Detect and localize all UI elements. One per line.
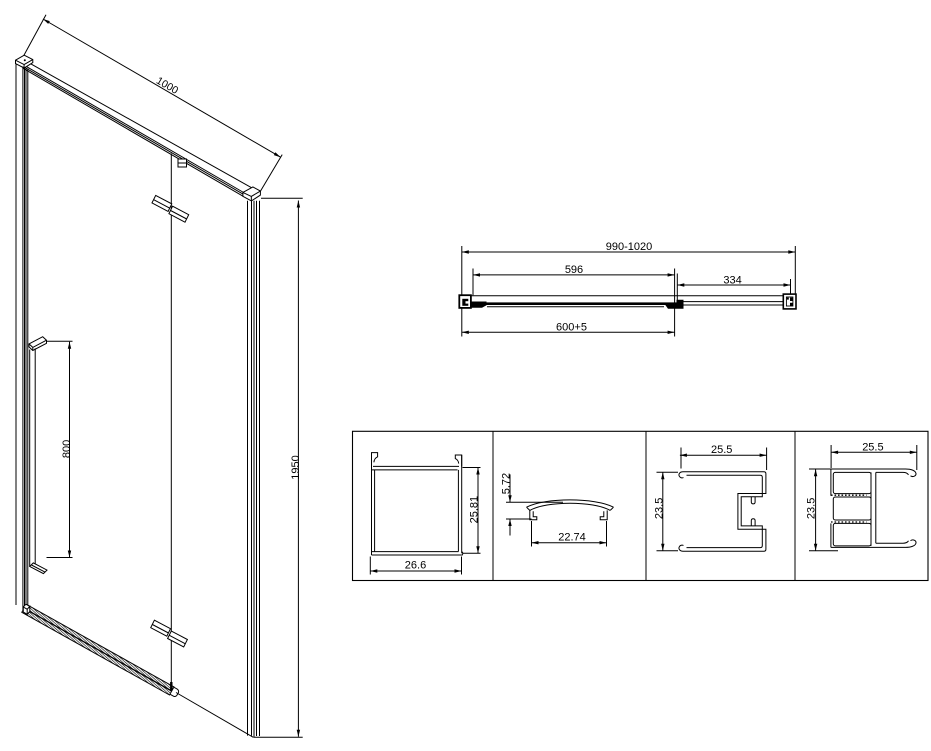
svg-text:596: 596 — [565, 264, 583, 276]
svg-text:25.5: 25.5 — [711, 444, 732, 456]
svg-text:1000: 1000 — [154, 75, 180, 97]
svg-text:23.5: 23.5 — [806, 498, 818, 519]
svg-text:22.74: 22.74 — [558, 532, 586, 544]
svg-text:800: 800 — [61, 440, 73, 458]
svg-text:5.72: 5.72 — [501, 473, 513, 494]
svg-text:334: 334 — [723, 275, 741, 287]
svg-text:25.5: 25.5 — [862, 442, 883, 454]
svg-text:990-1020: 990-1020 — [606, 241, 653, 253]
svg-text:1950: 1950 — [290, 455, 302, 479]
svg-text:26.6: 26.6 — [405, 560, 426, 572]
svg-text:23.5: 23.5 — [653, 498, 665, 519]
svg-text:600+5: 600+5 — [556, 321, 587, 333]
svg-text:25.81: 25.81 — [469, 496, 481, 524]
